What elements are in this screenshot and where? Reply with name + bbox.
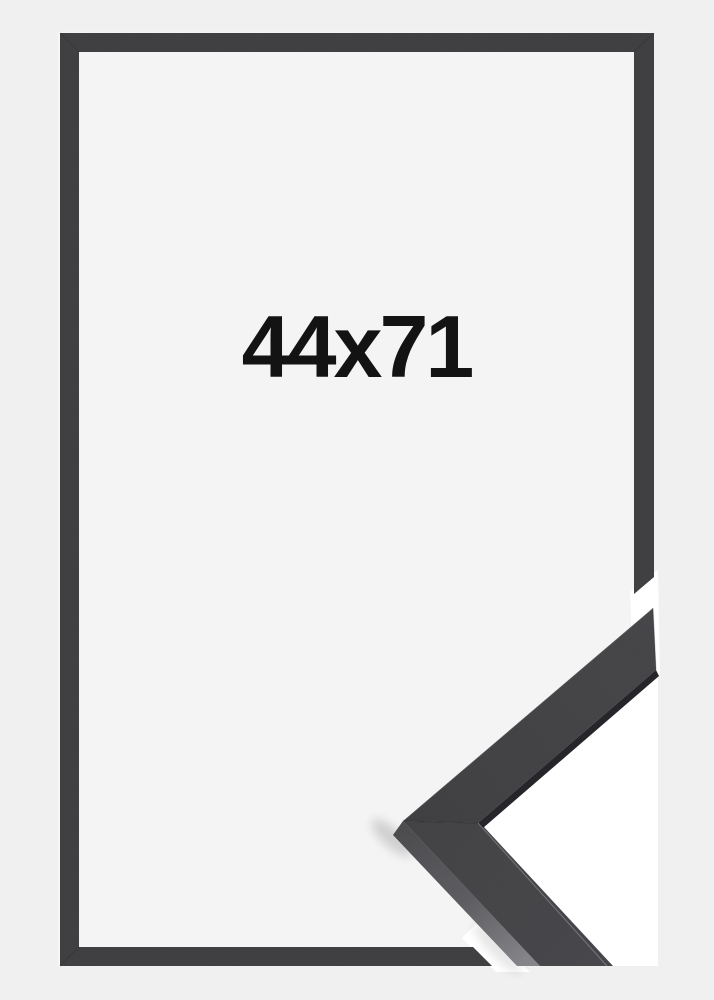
picture-frame-graphic <box>0 0 714 1000</box>
product-image: 44x71 <box>0 0 714 1000</box>
size-label: 44x71 <box>79 247 634 447</box>
